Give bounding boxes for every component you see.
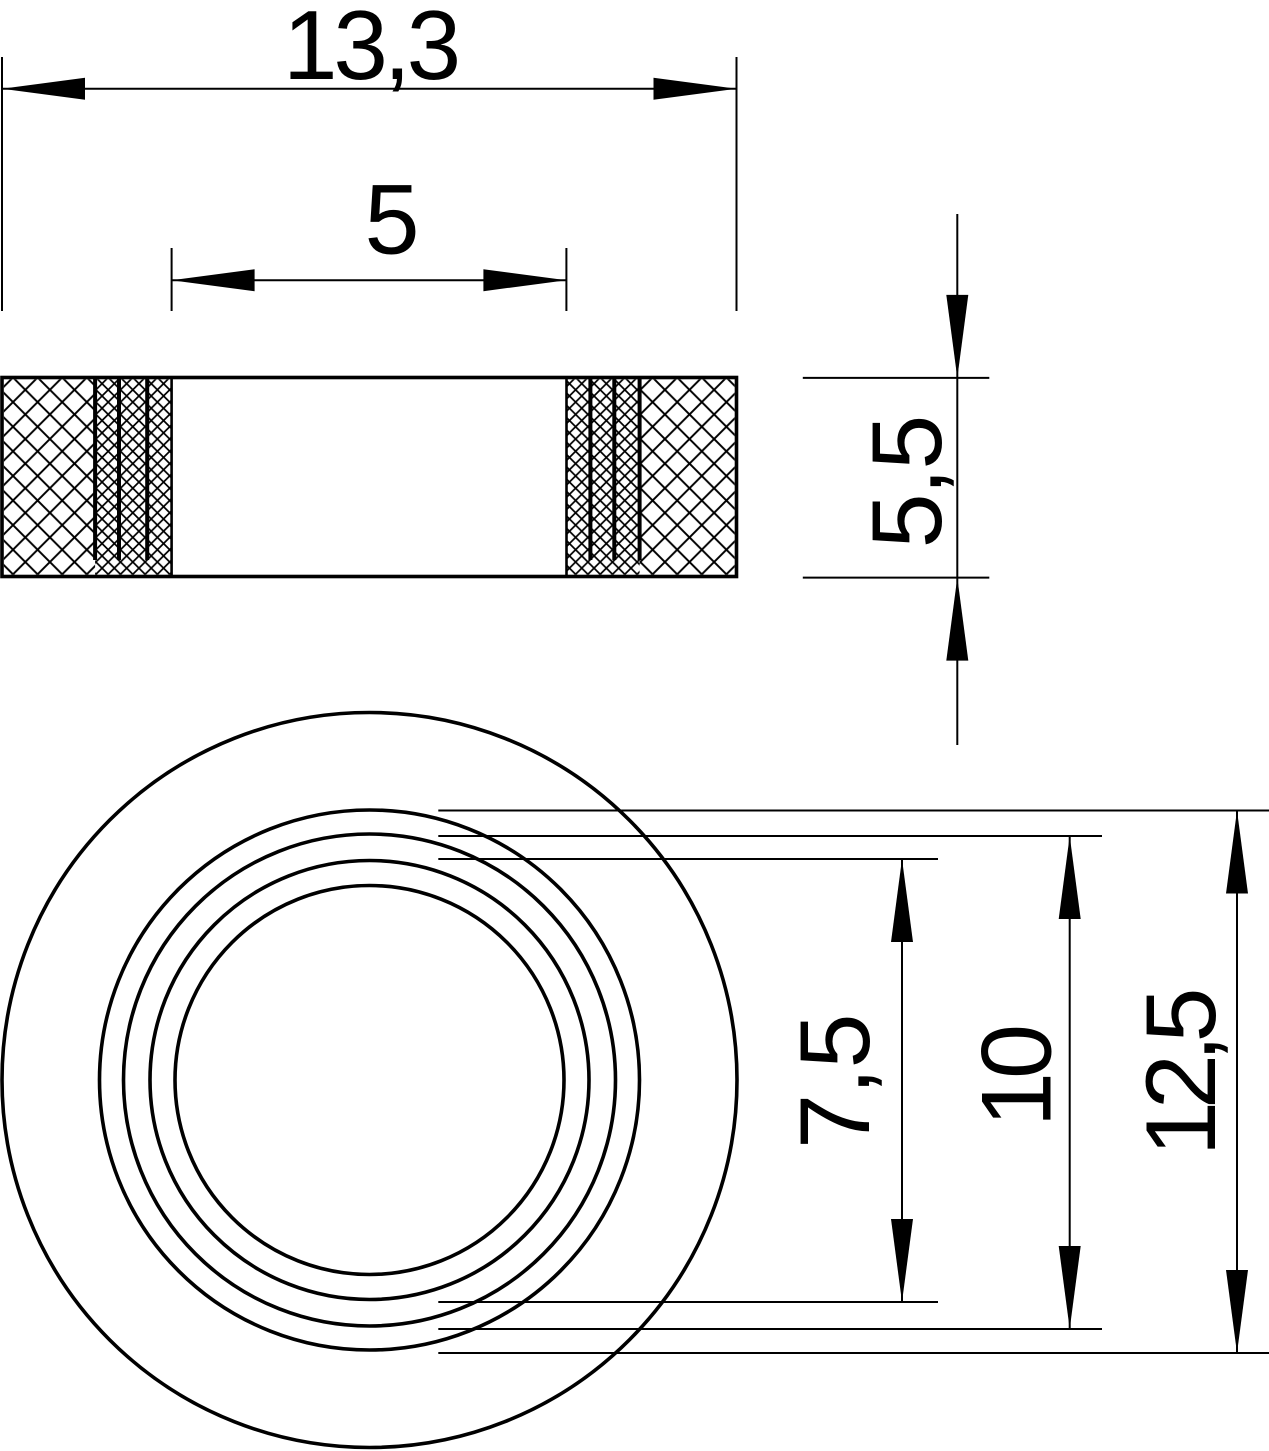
svg-text:7,5: 7,5 [779, 1014, 890, 1149]
svg-text:13,3: 13,3 [283, 0, 458, 100]
svg-text:5,5: 5,5 [851, 417, 962, 549]
svg-text:5: 5 [364, 164, 419, 275]
svg-text:12,5: 12,5 [1125, 992, 1236, 1157]
svg-text:10: 10 [961, 1027, 1072, 1127]
